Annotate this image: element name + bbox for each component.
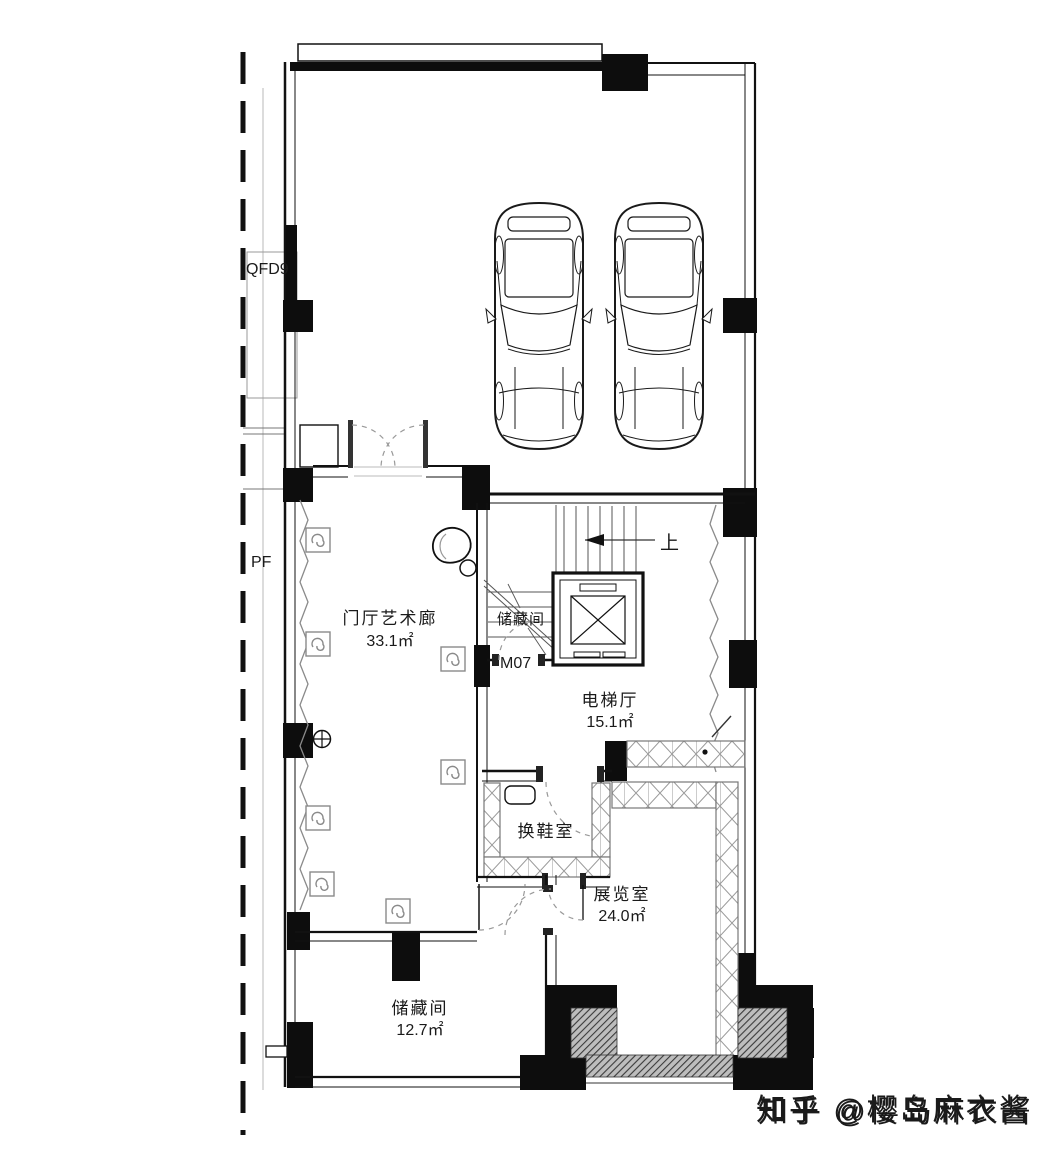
label-m07: M07 (500, 655, 531, 672)
fixture-icon (306, 806, 330, 830)
stair-up-arrow (585, 534, 655, 546)
label-foyer-name: 门厅艺术廊 (343, 609, 438, 628)
cabinet (612, 782, 716, 808)
car-2 (606, 203, 712, 449)
cabinet (484, 783, 500, 857)
car-1 (486, 203, 592, 449)
column (602, 54, 648, 91)
label-stair-up: 上 (660, 532, 679, 554)
label-understair-storage: 储藏间 (497, 611, 545, 628)
cabinet (716, 782, 738, 1058)
fixture-icon (306, 528, 330, 552)
garage-door (298, 44, 602, 61)
garage (462, 203, 755, 503)
bench (505, 786, 535, 804)
label-exhibition-name: 展览室 (594, 885, 651, 904)
fixture-icon (386, 899, 410, 923)
bottom-structure (520, 985, 814, 1090)
column (723, 298, 757, 333)
floor-plan-drawing: QFD9 PF 门厅艺术廊 33.1㎡ 储藏间 M07 上 电梯厅 15.1㎡ … (0, 0, 1050, 1149)
label-pf: PF (251, 554, 272, 571)
label-elevator-hall-area: 15.1㎡ (586, 713, 633, 731)
fixture-icon (441, 760, 465, 784)
fixture-icon (310, 872, 334, 896)
label-storage-area: 12.7㎡ (396, 1021, 443, 1039)
floor-plan-page: QFD9 PF 门厅艺术廊 33.1㎡ 储藏间 M07 上 电梯厅 15.1㎡ … (0, 0, 1050, 1149)
label-shoe-room: 换鞋室 (518, 822, 575, 841)
column-symbol (313, 730, 331, 748)
property-boundary (243, 52, 297, 1135)
watermark: 知乎 @樱岛麻衣酱 知乎 @樱岛麻衣酱 (756, 1094, 1034, 1129)
cabinet (592, 783, 610, 857)
label-storage-name: 储藏间 (392, 999, 449, 1018)
fixture-icon (441, 647, 465, 671)
label-qfd9: QFD9 (246, 261, 289, 278)
label-foyer-area: 33.1㎡ (366, 632, 413, 650)
elevator (553, 573, 643, 665)
sculpture (433, 528, 476, 576)
cabinet (627, 741, 745, 767)
fixture-icon (306, 632, 330, 656)
label-exhibition-area: 24.0㎡ (598, 907, 645, 925)
watermark-text: 知乎 @樱岛麻衣酱 (756, 1094, 1032, 1127)
entry-double-door (300, 420, 490, 510)
column (392, 933, 420, 981)
label-elevator-hall-name: 电梯厅 (582, 691, 639, 710)
faceted-glass-wall (300, 500, 308, 910)
column (729, 640, 757, 688)
column (605, 741, 627, 781)
shoe-room (477, 766, 612, 920)
